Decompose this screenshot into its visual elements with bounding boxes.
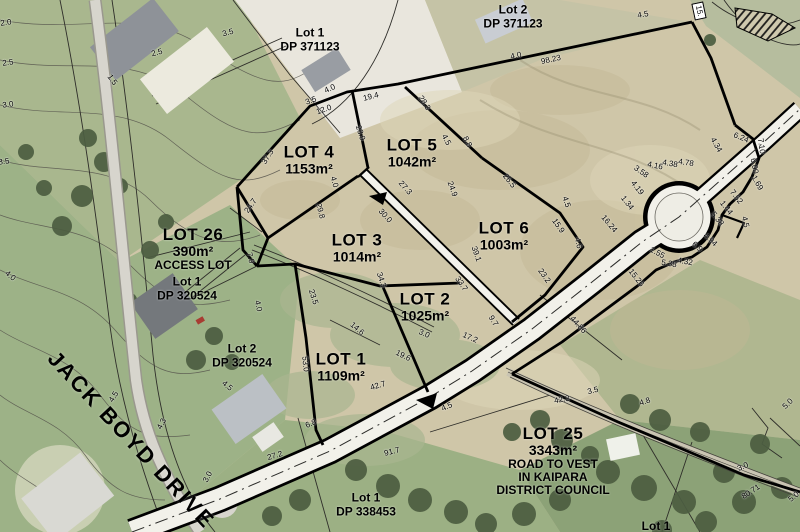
measurement-label: 23.2 [536, 267, 551, 284]
lot-label-lot-25: LOT 253343m²ROAD TO VESTIN KAIPARADISTRI… [496, 425, 609, 497]
measurement-label: 34.3 [375, 271, 387, 288]
measurement-label: 7.10 [756, 138, 766, 155]
measurement-label: 5.38 [661, 259, 678, 270]
measurement-label: 4.5 [740, 216, 750, 229]
measurement-label: 1.34 [619, 194, 635, 211]
contour-label: 4.0 [3, 269, 17, 282]
measurement-label: 37.3 [260, 148, 275, 165]
measurement-label: 4.0 [253, 300, 263, 313]
measurement-label: 4.34 [709, 136, 724, 153]
lot-label-lot-5: LOT 51042m² [387, 136, 438, 169]
contour-label: 3.0 [2, 100, 14, 109]
measurement-label: 7.52 [728, 188, 744, 205]
measurement-label: 98.23 [540, 54, 561, 66]
measurement-label: 4.0 [323, 83, 336, 95]
measurement-label: 3.5 [587, 386, 600, 396]
parcel-label: Lot 1DP 371123 [280, 26, 339, 55]
measurement-label: 53.0 [300, 356, 310, 372]
parcel-label: Lot 1DP 338453 [336, 491, 396, 520]
measurement-label: 3.5 [304, 95, 317, 106]
measurement-label: 4.8 [638, 396, 651, 407]
parcel-label: Lot 2DP 320524 [212, 342, 272, 371]
measurement-label: 19.4 [362, 91, 379, 103]
parcel-label: Lot 2DP 371123 [483, 3, 542, 32]
measurement-label: 4.5 [560, 195, 571, 208]
measurement-label: 29.8 [314, 202, 326, 219]
measurement-label: 27.2 [266, 450, 283, 462]
measurement-label: 4.5 [440, 133, 452, 147]
measurement-label: 26.5 [501, 172, 517, 189]
lot-label-lot-26: LOT 26390m²ACCESS LOT [154, 226, 231, 272]
measurement-label: 6.9 [690, 240, 704, 253]
measurement-label: 23.5 [307, 288, 319, 305]
measurement-label: 4.0 [510, 51, 523, 61]
measurement-label: 4.5 [440, 401, 453, 413]
measurement-label: 4.19 [629, 179, 645, 196]
measurement-label: 15.26 [627, 268, 646, 289]
measurement-label: 24.7 [243, 197, 258, 214]
measurement-label: 33.7 [453, 275, 468, 292]
measurement-label: 14.6 [348, 321, 365, 337]
measurement-label: 4.6 [573, 237, 583, 250]
contour-label: 3.5 [0, 157, 10, 166]
measurement-label: 4.78 [678, 158, 695, 168]
measurement-label: 1.69 [750, 174, 765, 191]
measurement-label: 15.9 [550, 217, 565, 234]
road-width-tag: 15. [691, 1, 706, 20]
measurement-label: 6.24 [732, 131, 749, 144]
measurement-label: 91.7 [383, 446, 400, 458]
measurement-label: 4.5 [220, 379, 234, 392]
measurement-label: 42.3 [554, 395, 571, 406]
measurement-label: 27.3 [397, 180, 413, 197]
measurement-label: 3.0 [417, 328, 430, 340]
measurement-label: 80.71 [740, 483, 761, 501]
measurement-label: 9.7 [487, 314, 500, 328]
measurement-label: 6.8 [304, 418, 317, 430]
measurement-label: 12.0 [315, 104, 332, 117]
contour-label: 2.5 [151, 48, 164, 59]
measurement-label: 4.0 [329, 176, 340, 189]
measurement-label: 7.9 [245, 252, 256, 265]
measurement-label: 3.0 [736, 461, 749, 473]
measurement-label: 6.00 [749, 158, 760, 175]
contour-label: 1.5 [106, 73, 119, 87]
measurement-label: 8.8 [461, 135, 473, 149]
measurement-label: 23.9 [354, 124, 366, 141]
map-labels-layer: JACK BOYD DRIVE 15. LOT 41153m²LOT 51042… [0, 0, 800, 532]
map-canvas: JACK BOYD DRIVE 15. LOT 41153m²LOT 51042… [0, 0, 800, 532]
measurement-label: 4.38 [662, 159, 679, 170]
measurement-label: 5.0 [781, 397, 795, 411]
parcel-label: Lot 1DP 320524 [157, 275, 217, 304]
measurement-label: 5.0 [787, 490, 800, 503]
measurement-label: 30.0 [377, 208, 393, 225]
measurement-label: 17.2 [461, 331, 478, 345]
lot-label-lot-3: LOT 31014m² [332, 231, 383, 264]
lot-label-lot-4: LOT 41153m² [284, 143, 335, 176]
contour-label: 2.0 [0, 18, 12, 27]
lot-label-lot-1: LOT 11109m² [316, 350, 367, 383]
contour-label: 3.5 [222, 28, 235, 39]
measurement-label: 4.5 [637, 10, 649, 20]
measurement-label: 24.9 [446, 180, 459, 197]
parcel-label: Lot 1 [642, 519, 671, 532]
street-label-jack-boyd-drive: JACK BOYD DRIVE [42, 346, 220, 532]
measurement-label: 4.32 [677, 257, 694, 268]
measurement-label: 16.24 [599, 214, 618, 234]
measurement-label: 44.86 [568, 315, 587, 335]
contour-label: 2.5 [2, 58, 14, 67]
lot-label-lot-2: LOT 21025m² [400, 290, 451, 323]
lot-label-lot-6: LOT 61003m² [479, 219, 530, 252]
measurement-label: 1.44 [718, 199, 734, 216]
measurement-label: 42.7 [369, 380, 386, 392]
measurement-label: 19.6 [394, 349, 412, 363]
measurement-label: 3.0 [202, 470, 214, 484]
measurement-label: 5.38 [709, 210, 725, 227]
measurement-label: 4.3 [156, 417, 168, 431]
measurement-label: 28.3 [416, 94, 431, 111]
